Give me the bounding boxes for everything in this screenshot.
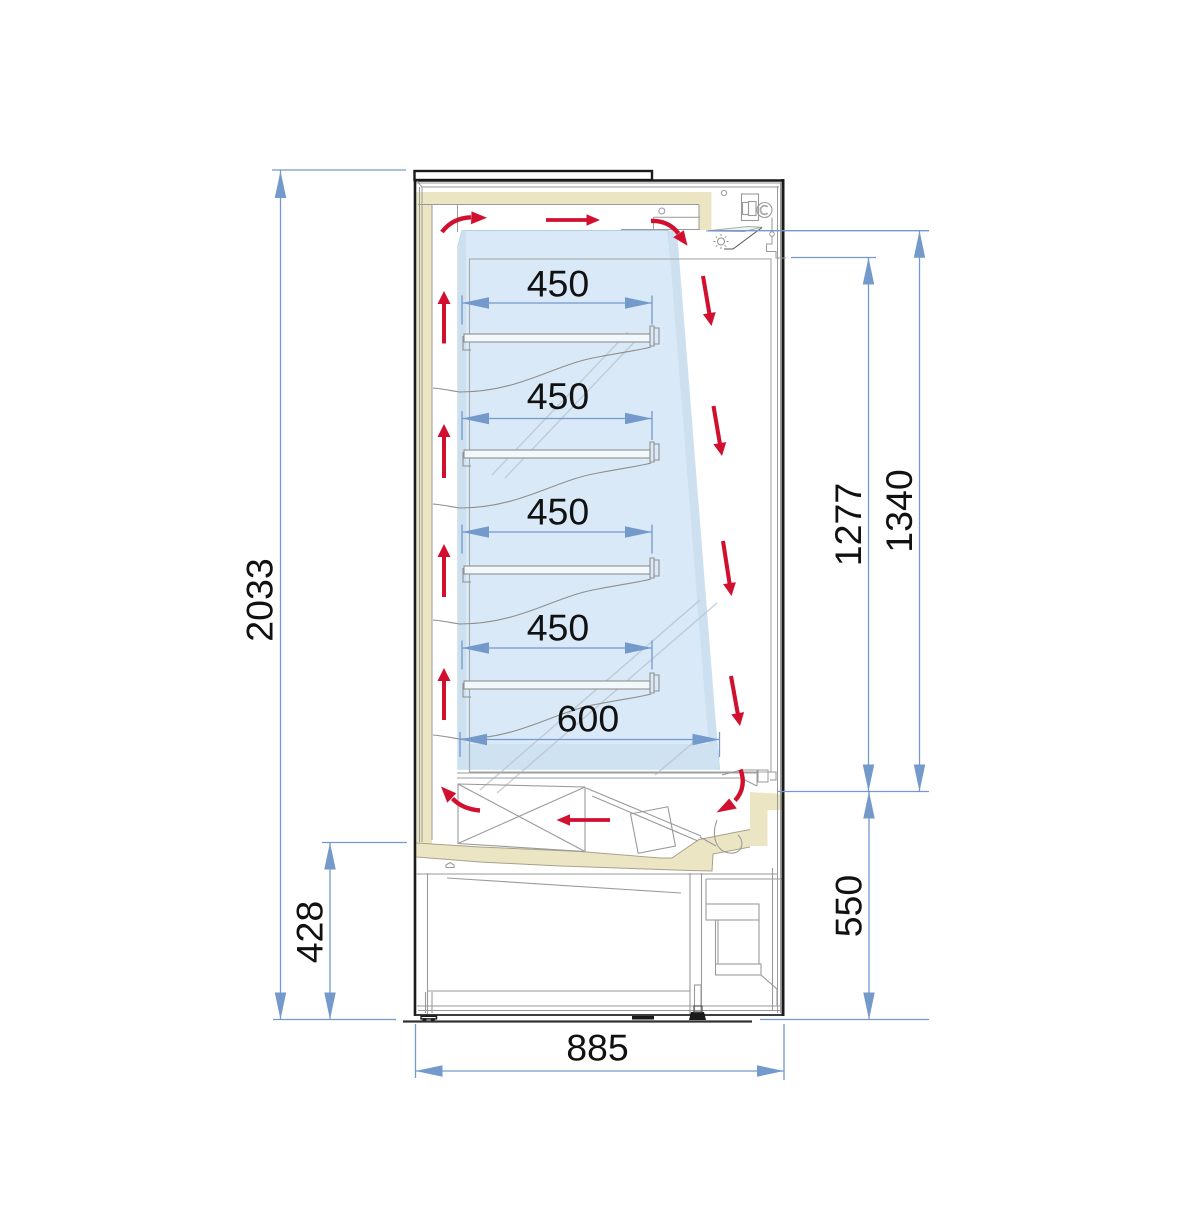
- svg-text:2033: 2033: [239, 558, 281, 641]
- svg-text:550: 550: [828, 875, 870, 938]
- svg-text:428: 428: [289, 901, 331, 964]
- svg-text:450: 450: [527, 375, 590, 417]
- svg-text:885: 885: [566, 1027, 629, 1069]
- svg-text:1277: 1277: [827, 483, 869, 566]
- svg-text:600: 600: [557, 698, 620, 740]
- svg-text:450: 450: [527, 263, 590, 305]
- svg-text:450: 450: [527, 491, 590, 533]
- svg-text:1340: 1340: [878, 469, 920, 552]
- svg-text:450: 450: [527, 607, 590, 649]
